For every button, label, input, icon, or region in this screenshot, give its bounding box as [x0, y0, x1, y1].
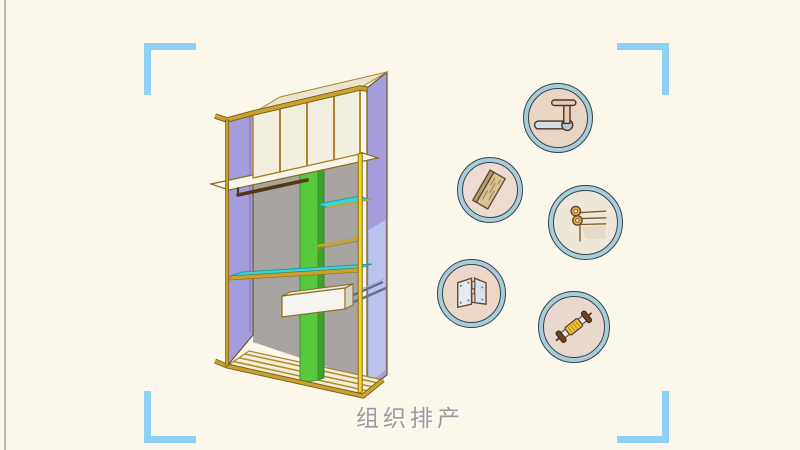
- hinge-icon: [447, 269, 496, 318]
- viewfinder-corner-top-left: [144, 43, 196, 95]
- part-badge-rail-hooks: [548, 185, 623, 260]
- part-badge-wood-plank: [457, 157, 523, 223]
- wood-plank-icon: [467, 167, 513, 213]
- left-edge-line: [4, 0, 6, 450]
- viewfinder-corner-bottom-right: [617, 391, 669, 443]
- part-badge-connecting-bolt: [538, 291, 610, 363]
- connecting-bolt-icon: [548, 301, 600, 353]
- caption-text: 组织排产: [320, 399, 500, 433]
- part-badge-hinge: [437, 259, 506, 328]
- wardrobe-illustration: [205, 66, 425, 402]
- part-badge-rod-bracket: [523, 83, 593, 153]
- viewfinder-corner-bottom-left: [144, 391, 196, 443]
- closet-rod-bracket-icon: [533, 93, 583, 143]
- video-frame: 组织排产: [0, 0, 800, 450]
- viewfinder-corner-top-right: [617, 43, 669, 95]
- rail-hooks-icon: [558, 195, 612, 249]
